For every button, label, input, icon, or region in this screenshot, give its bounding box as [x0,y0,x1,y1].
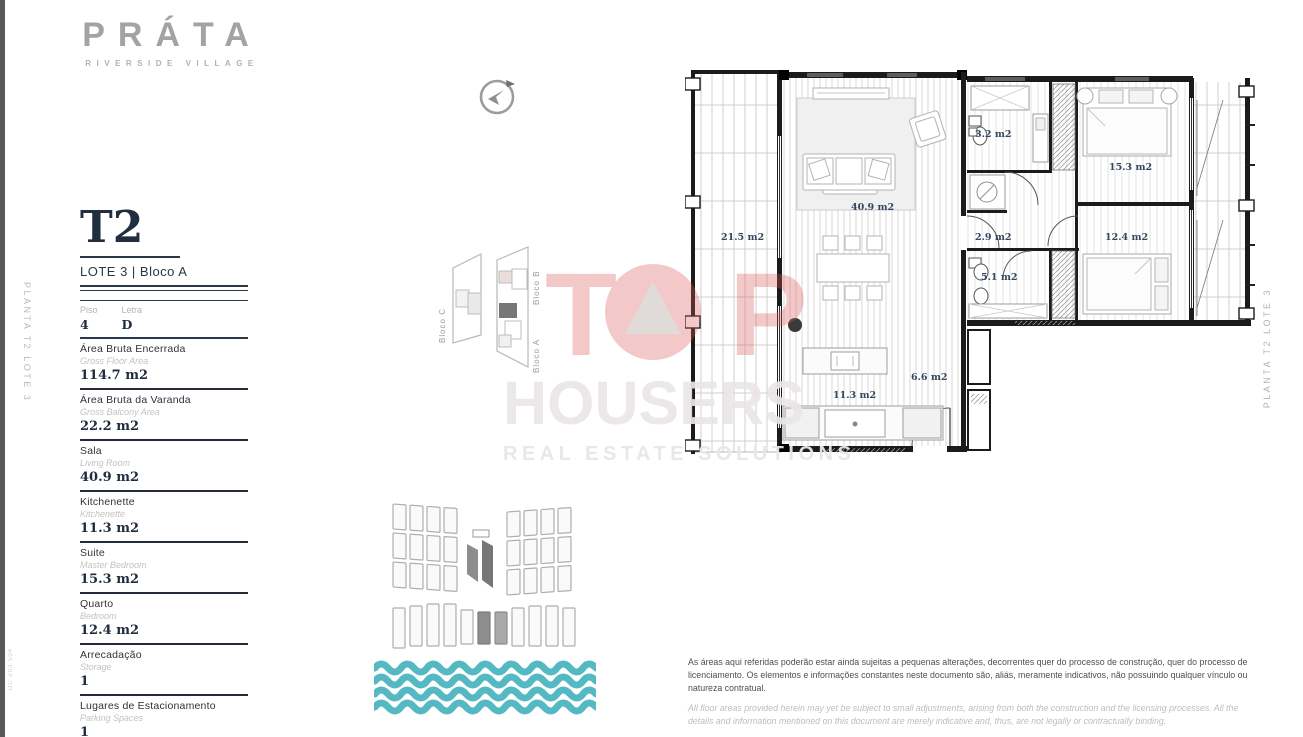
spec-label-pt: Kitchenette [80,496,248,508]
bloco-a-label: Bloco A [532,339,541,373]
spec-label-pt: Sala [80,445,248,457]
entrance-vestibule [968,330,990,450]
spec-label-en: Kitchenette [80,509,248,519]
spec-row-gross-floor-area: Área Bruta Encerrada Gross Floor Area 11… [80,339,248,390]
building-illustration [385,486,595,651]
spec-label-en: Master Bedroom [80,560,248,570]
spec-label-en: Bedroom [80,611,248,621]
room-label-bedroom: 12.4 m2 [1105,232,1148,243]
floor-plan: 21.5 m2 40.9 m2 11.3 m2 6.6 m2 3.2 m2 15… [685,58,1255,470]
room-label-hallway: 2.9 m2 [975,232,1012,243]
right-wing [967,76,1255,326]
spec-label-en: Gross Balcony Area [80,407,248,417]
floor-cell: Piso 4 [80,305,98,332]
spec-label-en: Storage [80,662,248,672]
building-highlight-panels [467,530,493,588]
right-margin-label: PLANTA T2 LOTE 3 [1262,288,1272,408]
floor-letter-row: Piso 4 Letra D [80,301,248,337]
spec-value: 11.3 m2 [80,521,248,536]
room-label-living: 40.9 m2 [851,202,894,213]
floor-value: 4 [80,317,98,332]
brand-logo: PRÁTA RIVERSIDE VILLAGE [72,16,272,68]
spec-row-bedroom: Quarto Bedroom 12.4 m2 [80,594,248,645]
brand-logo-text: PRÁTA [72,16,272,55]
unit-location: LOTE 3 | Bloco A [80,258,248,285]
spec-value: 15.3 m2 [80,572,248,587]
spec-value: 1 [80,725,248,737]
left-margin-label: PLANTA T2 LOTE 3 [22,282,32,402]
spec-label-pt: Área Bruta da Varanda [80,394,248,406]
spec-label-pt: Quarto [80,598,248,610]
bloco-b-label: Bloco B [532,270,541,305]
letter-value: D [122,317,143,332]
room-label-suite: 15.3 m2 [1109,162,1152,173]
room-label-hall: 6.6 m2 [911,372,948,383]
spec-value: 22.2 m2 [80,419,248,434]
spec-label-en: Parking Spaces [80,713,248,723]
letter-label: Letra [122,305,143,315]
floor-label: Piso [80,305,98,315]
disclaimer-en: All floor areas provided herein may yet … [688,702,1260,728]
watermark-o-triangle [625,281,681,334]
disclaimer: As áreas aqui referidas poderão estar ai… [688,656,1260,728]
spec-row-storage: Arrecadação Storage 1 [80,645,248,696]
spec-value: 40.9 m2 [80,470,248,485]
spec-label-pt: Área Bruta Encerrada [80,343,248,355]
room-label-bathroom-2: 5.1 m2 [981,272,1018,283]
spec-row-parking: Lugares de Estacionamento Parking Spaces… [80,696,248,737]
compass-icon [474,74,522,122]
spec-label-en: Gross Floor Area [80,356,248,366]
spec-value: 1 [80,674,248,689]
plan-marker-dot [788,318,802,332]
spec-row-kitchenette: Kitchenette Kitchenette 11.3 m2 [80,492,248,543]
room-label-balcony: 21.5 m2 [721,232,764,243]
bloco-c-label: Bloco C [438,308,447,343]
room-label-bathroom-1: 3.2 m2 [975,129,1012,140]
spec-value: 114.7 m2 [80,368,248,383]
river-waves-icon [374,660,596,716]
unit-spec-panel: T2 LOTE 3 | Bloco A Piso 4 Letra D Área … [80,206,248,737]
brand-logo-subtitle: RIVERSIDE VILLAGE [72,59,272,68]
highlighted-unit [499,303,517,318]
left-edge-bar [0,0,5,737]
document-code: DC 203 504 [8,648,14,690]
brochure-page: PRÁTA RIVERSIDE VILLAGE PLANTA T2 LOTE 3… [0,0,1303,737]
spec-row-living-room: Sala Living Room 40.9 m2 [80,441,248,492]
spec-row-gross-balcony-area: Área Bruta da Varanda Gross Balcony Area… [80,390,248,441]
room-label-kitchenette: 11.3 m2 [833,390,876,401]
unit-type: T2 [80,206,248,250]
site-plan-diagram: Bloco C Bloco B Bloco A [435,243,615,378]
spec-label-pt: Suite [80,547,248,559]
spec-row-suite: Suite Master Bedroom 15.3 m2 [80,543,248,594]
letter-cell: Letra D [122,305,143,332]
spec-label-en: Living Room [80,458,248,468]
balcony-left [685,70,781,454]
disclaimer-pt: As áreas aqui referidas poderão estar ai… [688,656,1260,696]
spec-label-pt: Lugares de Estacionamento [80,700,248,712]
spec-value: 12.4 m2 [80,623,248,638]
divider [80,285,248,287]
spec-label-pt: Arrecadação [80,649,248,661]
